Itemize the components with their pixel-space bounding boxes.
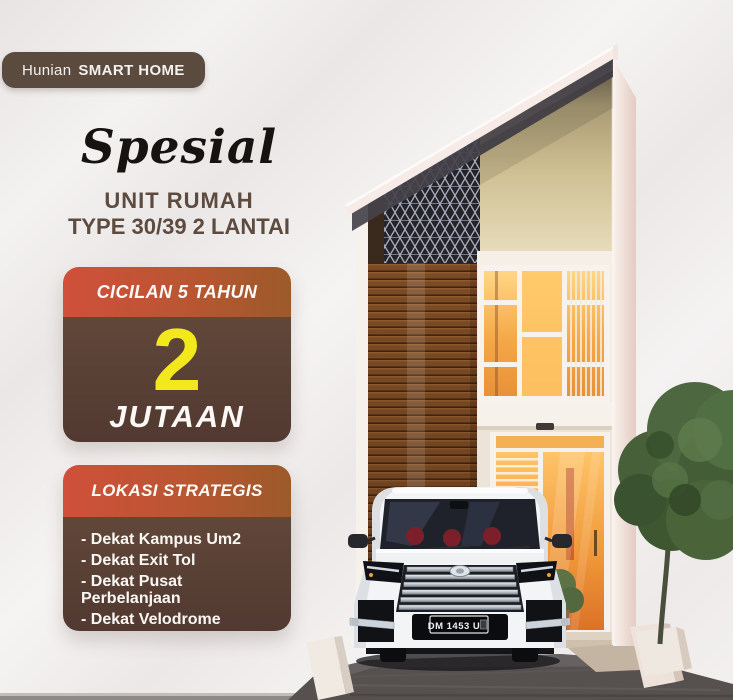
car: DM 1453 U — [348, 487, 572, 671]
installment-card: CICILAN 5 TAHUN 2 JUTAAN — [63, 267, 291, 442]
flyer-canvas: DM 1453 U — [0, 0, 733, 700]
license-plate: DM 1453 U — [428, 616, 488, 633]
installment-amount: 2 — [153, 324, 202, 396]
headline-line2: TYPE 30/39 2 LANTAI — [0, 214, 358, 240]
front-grille — [396, 565, 524, 612]
installment-unit: JUTAAN — [109, 399, 244, 435]
brand-badge: Hunian SMART HOME — [2, 52, 205, 88]
location-card: LOKASI STRATEGIS - Dekat Kampus Um2 - De… — [63, 465, 291, 631]
upper-floor-window — [478, 265, 610, 402]
band-above-window — [477, 251, 613, 265]
location-item: - Dekat Kampus Um2 — [81, 531, 283, 548]
badge-bold: SMART HOME — [78, 62, 185, 79]
side-return-wall — [613, 58, 636, 646]
installment-card-body: 2 JUTAAN — [63, 317, 291, 442]
wall-lamp — [536, 423, 554, 430]
windshield — [380, 499, 540, 551]
location-item: - Dekat Velodrome — [81, 611, 283, 628]
location-card-body: - Dekat Kampus Um2 - Dekat Exit Tol - De… — [63, 517, 291, 631]
location-card-header: LOKASI STRATEGIS — [63, 465, 291, 517]
headline-line1: UNIT RUMAH — [0, 188, 358, 214]
location-item: - Dekat Exit Tol — [81, 552, 283, 569]
badge-prefix: Hunian — [22, 62, 71, 79]
headline-script: Spesial — [0, 120, 358, 175]
location-item: - Dekat Pusat Perbelanjaan — [81, 573, 283, 607]
license-plate-text: DM 1453 U — [428, 621, 481, 632]
